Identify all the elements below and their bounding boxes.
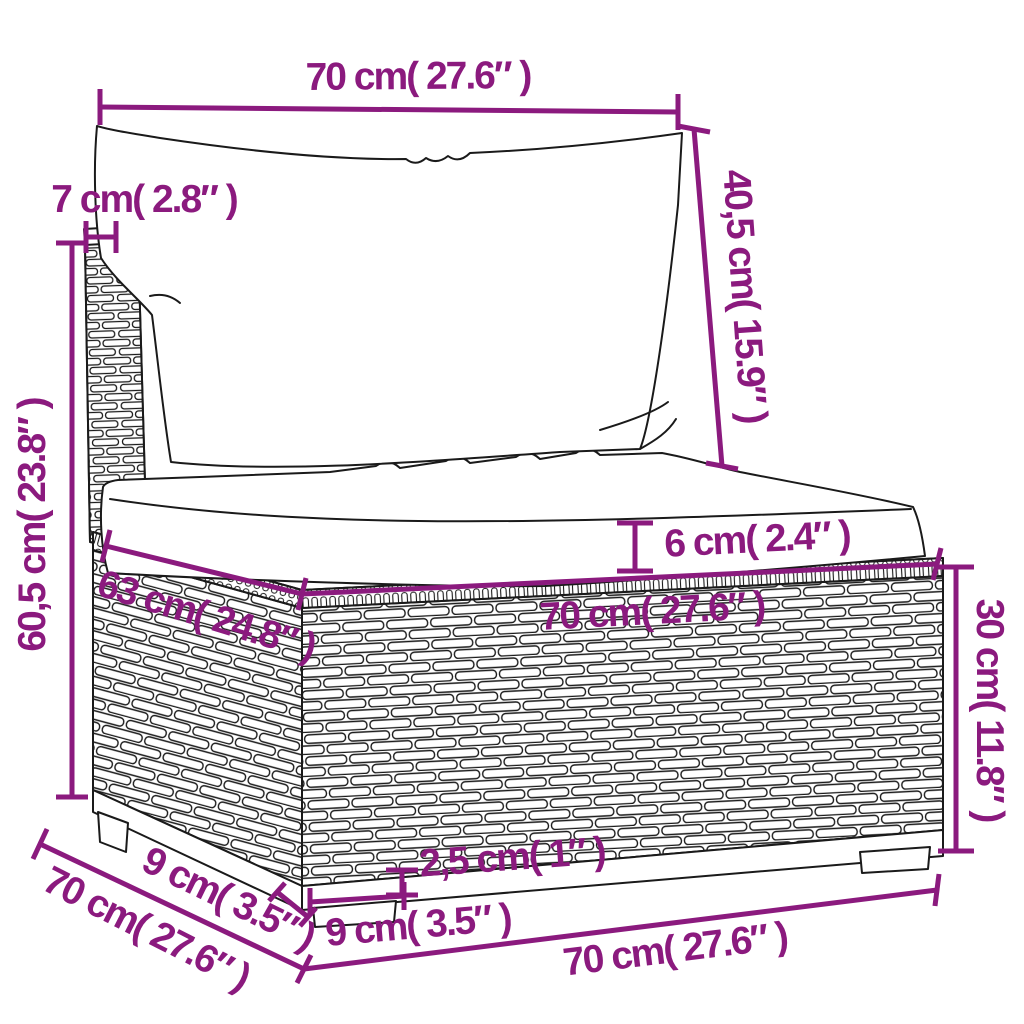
dim-label-top-width: 70 cm( 27.6″ ) — [305, 54, 530, 100]
dim-label-back-post-depth: 7 cm( 2.8″ ) — [51, 178, 236, 222]
dim-label-back-total-height: 60,5 cm( 23.8″ ) — [11, 398, 55, 651]
dim-line-back-total-height — [56, 243, 88, 797]
dimension-diagram: 70 cm( 27.6″ ) 40,5 cm( 15.9″ ) 7 cm( 2.… — [0, 0, 1024, 1024]
leg-front-right — [860, 847, 930, 873]
dim-label-base-height: 30 cm( 11.8″ ) — [967, 599, 1011, 822]
